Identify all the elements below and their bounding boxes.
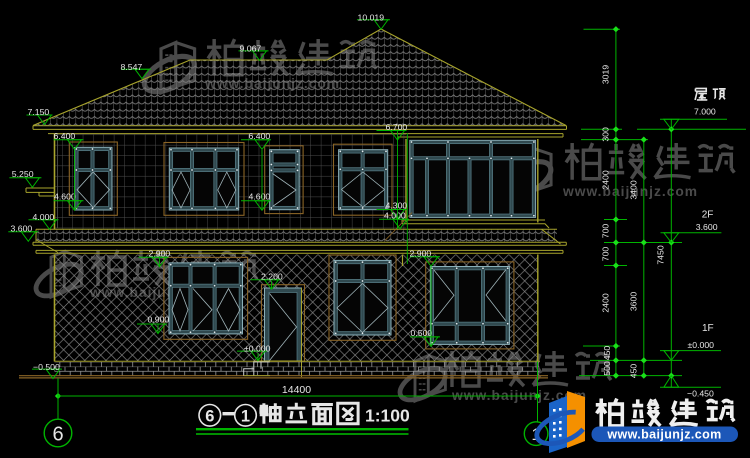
svg-text:6.400: 6.400 — [249, 131, 271, 141]
svg-text:300: 300 — [601, 127, 611, 142]
svg-text:14400: 14400 — [282, 384, 311, 396]
svg-text:7450: 7450 — [656, 245, 666, 264]
svg-text:4.000: 4.000 — [384, 211, 406, 221]
svg-text:5.250: 5.250 — [12, 169, 34, 179]
svg-text:700: 700 — [601, 224, 611, 239]
svg-text:2.200: 2.200 — [261, 271, 283, 281]
svg-text:500: 500 — [602, 361, 612, 376]
svg-text:700: 700 — [601, 247, 611, 262]
svg-text:2400: 2400 — [601, 170, 611, 189]
svg-text:1F: 1F — [702, 323, 714, 334]
svg-text:2.900: 2.900 — [149, 249, 171, 259]
svg-text:6.700: 6.700 — [386, 122, 408, 132]
svg-text:www.baijunjz.com: www.baijunjz.com — [606, 427, 721, 441]
svg-text:450: 450 — [602, 346, 612, 361]
svg-text:3.600: 3.600 — [11, 223, 33, 233]
svg-text:±0.000: ±0.000 — [688, 340, 715, 350]
svg-text:7.000: 7.000 — [694, 107, 716, 117]
svg-text:±0.000: ±0.000 — [244, 343, 271, 353]
svg-text:4.000: 4.000 — [33, 212, 55, 222]
svg-text:2F: 2F — [702, 210, 714, 221]
svg-text:450: 450 — [628, 364, 638, 379]
svg-text:1:100: 1:100 — [365, 406, 410, 426]
svg-text:7.150: 7.150 — [28, 107, 50, 117]
svg-text:8.547: 8.547 — [121, 62, 143, 72]
svg-text:3.600: 3.600 — [696, 222, 718, 232]
svg-text:6.400: 6.400 — [54, 131, 76, 141]
svg-text:3019: 3019 — [601, 65, 611, 84]
svg-text:−0.450: −0.450 — [687, 388, 714, 398]
svg-text:3600: 3600 — [628, 292, 638, 311]
svg-text:0.500: 0.500 — [411, 328, 433, 338]
svg-text:10.019: 10.019 — [358, 13, 385, 23]
svg-text:0.900: 0.900 — [148, 314, 170, 324]
svg-text:2400: 2400 — [601, 293, 611, 312]
svg-text:1: 1 — [241, 408, 250, 426]
svg-text:6: 6 — [205, 408, 214, 426]
svg-text:4.300: 4.300 — [386, 201, 408, 211]
svg-text:4.600: 4.600 — [249, 192, 271, 202]
svg-text:2.900: 2.900 — [410, 249, 432, 259]
svg-text:6: 6 — [52, 424, 63, 446]
svg-text:−0.500: −0.500 — [33, 362, 60, 372]
svg-text:9.067: 9.067 — [240, 44, 262, 54]
svg-text:3400: 3400 — [628, 180, 638, 199]
svg-text:4.600: 4.600 — [54, 192, 76, 202]
